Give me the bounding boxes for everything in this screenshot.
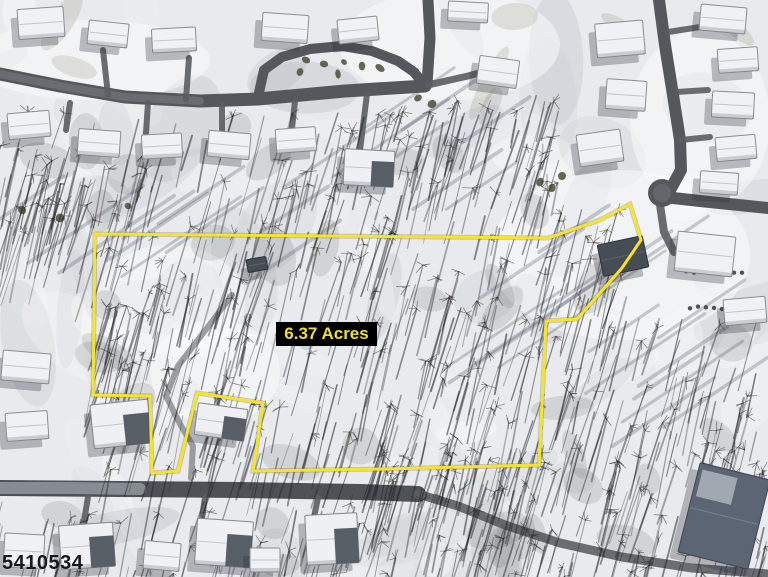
road [314, 498, 318, 517]
road [66, 103, 70, 130]
house [268, 127, 317, 162]
house [716, 296, 768, 334]
house [10, 6, 66, 48]
road [676, 90, 708, 92]
photo-canvas [0, 0, 768, 577]
house [144, 27, 197, 62]
house [83, 399, 153, 458]
house [569, 129, 625, 176]
acreage-label: 6.37 Acres [276, 322, 377, 346]
watermark-id: 5410534 [2, 552, 83, 574]
road [186, 58, 189, 99]
house [588, 20, 646, 67]
house [0, 411, 49, 450]
road [0, 488, 140, 489]
house [0, 110, 52, 148]
road [146, 103, 148, 133]
road [427, 0, 430, 84]
aerial-photo: 6.37 Acres 5410534 [0, 0, 768, 577]
house [298, 513, 360, 574]
house [134, 133, 183, 167]
house [330, 16, 380, 53]
road [681, 137, 710, 140]
house [708, 134, 758, 170]
house [710, 47, 759, 82]
photo-texture [0, 0, 768, 577]
